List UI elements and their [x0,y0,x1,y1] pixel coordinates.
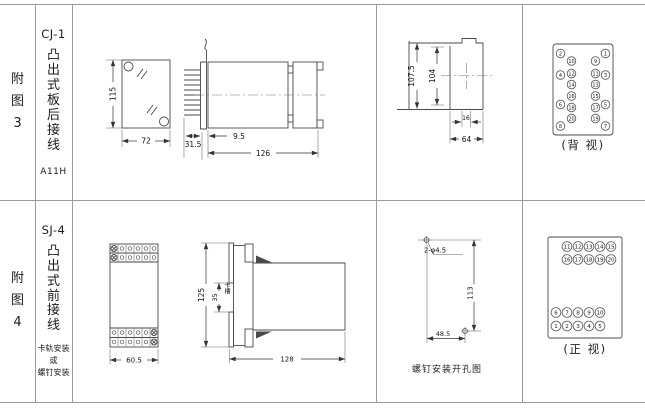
dim-113: 113 [466,286,474,299]
break-mark [205,39,207,50]
front-view-caption: (正 视) [563,342,606,356]
hatch-marks [137,69,157,115]
terminal-number: 4 [587,324,591,330]
terminal-number: 7 [604,124,607,130]
terminal-number: 14 [596,245,604,251]
terminal-number: 19 [596,258,604,264]
sj4-front-view: 60.5 [110,244,158,365]
terminal-number: 19 [592,116,598,122]
terminal-number: 11 [563,245,571,251]
terminal-number: 18 [568,105,574,111]
terminal-number: 12 [568,71,574,77]
dim-128: 128 [280,356,293,364]
dim-48-5: 48.5 [436,330,450,338]
dim-125: 125 [197,288,206,303]
terminal-number: 1 [604,51,607,57]
fig4-label: 附 图 4 [11,268,24,334]
front-view-pins: 1112131415161718192067891012345 [551,242,616,331]
terminal-number: 18 [585,258,593,264]
screw-icon [111,246,117,252]
back-view-caption: (背 视) [561,138,604,152]
sj4-drill-hole-diagram: 2-φ4.5 113 48.5 螺钉安装开孔图 [376,200,522,402]
fig4-title-cell: SJ-4 凸 出 式 前 接 线 卡轨安装 或 螺钉安装 [35,200,72,402]
sj4-mount-type: 凸 出 式 前 接 线 [47,245,60,335]
table-border-bottom [0,402,645,403]
cj1-mount-type: 凸 出 式 板 后 接 线 [47,49,60,154]
back-view-pins: 2468101214161820911131517191357 [556,49,610,130]
terminal-number: 11 [592,71,598,77]
terminal-number: 8 [559,124,562,130]
dim-31-5: 31.5 [185,140,202,149]
dim-72: 72 [141,137,151,146]
cj1-code: A11H [40,167,66,177]
cj1-outline-drawing: 115 72 31.5 9.5 126 [72,4,376,200]
fig3-number-cell: 附 图 3 [0,4,35,200]
relay-model-cj1: CJ-1 [41,27,65,41]
terminal-pins-lines [184,70,201,115]
terminal-number: 17 [592,105,598,111]
sj4-side-view: 125 35 卡槽 128 [197,243,345,364]
terminal-number: 6 [554,311,558,317]
terminal-number: 12 [574,245,581,251]
terminal-number: 13 [585,245,593,251]
clamp-triangle-bottom [256,332,272,339]
sj4-mount-note: 卡轨安装 或 螺钉安装 [38,343,70,379]
sj4-front-terminal-view: 1112131415161718192067891012345 (正 视) [522,200,645,402]
dim-104: 104 [428,69,437,84]
terminal-number: 9 [594,59,597,65]
dim-64: 64 [462,135,472,144]
terminal-number: 15 [592,94,598,100]
terminal-number: 5 [604,102,607,108]
cj1-panel-cutout-drawing: 107.5 104 16 64 [376,4,522,200]
terminal-number: 3 [576,324,580,330]
terminal-number: 6 [559,102,562,108]
cj1-side-view: 31.5 9.5 126 [184,39,325,160]
dim-35: 35 [211,293,219,301]
terminal-number: 16 [563,258,571,264]
screw-icon [151,339,157,345]
fig3-label: 附 图 3 [11,69,24,135]
figure-table: 附 图 3 CJ-1 凸 出 式 板 后 接 线 A11H 附 图 4 SJ-4… [0,0,645,408]
terminal-number: 8 [576,311,580,317]
terminal-number: 17 [574,258,582,264]
terminal-number: 16 [568,94,574,100]
fig3-title-cell: CJ-1 凸 出 式 板 后 接 线 A11H [35,4,72,200]
terminal-number: 2 [559,51,562,57]
dim-115: 115 [109,87,118,102]
terminal-number: 9 [587,311,591,317]
terminal-number: 1 [554,324,558,330]
mount-hole-bottom [461,327,469,335]
screw-icon [111,255,117,261]
cj1-back-terminal-view: 2468101214161820911131517191357 (背 视) [522,4,645,200]
drill-diagram-caption: 螺钉安装开孔图 [412,363,482,375]
fig4-number-cell: 附 图 4 [0,200,35,402]
clamp-triangle-top [256,256,272,263]
dim-16: 16 [462,115,470,122]
terminal-number: 10 [568,59,574,65]
terminal-number: 5 [598,324,602,330]
terminal-number: 10 [596,311,604,317]
terminal-number: 7 [565,311,569,317]
dim-126: 126 [256,149,271,158]
cj1-front-view: 115 72 [106,60,170,147]
dim-60-5: 60.5 [126,357,142,365]
dim-9-5: 9.5 [233,132,245,141]
terminal-number: 15 [607,245,615,251]
terminal-number: 20 [607,258,615,264]
screw-icon [151,330,157,336]
sj4-outline-drawing: 60.5 125 35 卡槽 128 [72,200,376,402]
terminal-number: 13 [592,82,598,88]
slot-label: 卡槽 [223,281,230,295]
terminal-number: 20 [568,116,574,122]
terminal-number: 4 [559,73,562,79]
terminal-number: 2 [565,324,569,330]
relay-model-sj4: SJ-4 [42,223,66,237]
mount-hole-top [423,236,431,244]
terminal-number: 3 [604,73,607,79]
terminal-number: 14 [568,82,574,88]
dim-107-5: 107.5 [407,65,416,87]
